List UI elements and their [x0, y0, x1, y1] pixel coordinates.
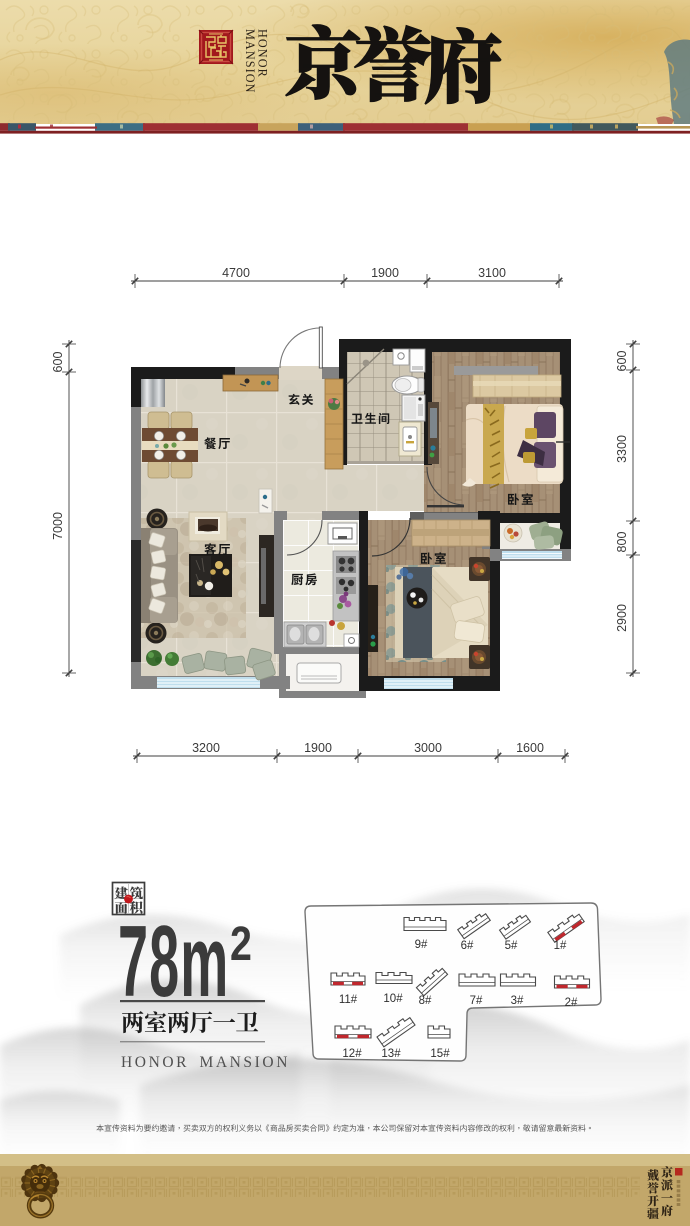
svg-text:800: 800 [615, 532, 629, 553]
svg-text:15#: 15# [430, 1048, 450, 1060]
svg-text:11#: 11# [339, 994, 358, 1006]
svg-text:MANSION: MANSION [243, 29, 257, 94]
svg-text:5#: 5# [505, 940, 518, 952]
svg-text:7000: 7000 [51, 512, 65, 540]
svg-text:1900: 1900 [371, 266, 399, 280]
svg-text:6#: 6# [461, 940, 474, 952]
svg-text:2#: 2# [565, 997, 578, 1009]
svg-text:2: 2 [230, 917, 252, 971]
svg-text:3100: 3100 [478, 266, 506, 280]
svg-text:8#: 8# [419, 995, 432, 1007]
svg-text:1#: 1# [554, 940, 567, 952]
svg-text:12#: 12# [342, 1048, 362, 1060]
svg-text:4700: 4700 [222, 266, 250, 280]
svg-text:2900: 2900 [615, 604, 629, 632]
svg-text:3300: 3300 [615, 435, 629, 463]
svg-text:7#: 7# [470, 995, 483, 1007]
svg-text:13#: 13# [381, 1048, 401, 1060]
svg-text:3#: 3# [511, 995, 524, 1007]
svg-text:1600: 1600 [516, 741, 544, 755]
svg-text:9#: 9# [415, 939, 428, 951]
svg-text:HONOR MANSION: HONOR MANSION [121, 1054, 290, 1071]
svg-text:10#: 10# [383, 993, 403, 1005]
svg-text:600: 600 [51, 352, 65, 373]
svg-text:3200: 3200 [192, 741, 220, 755]
svg-text:1900: 1900 [304, 741, 332, 755]
svg-text:600: 600 [615, 351, 629, 372]
svg-text:3000: 3000 [414, 741, 442, 755]
